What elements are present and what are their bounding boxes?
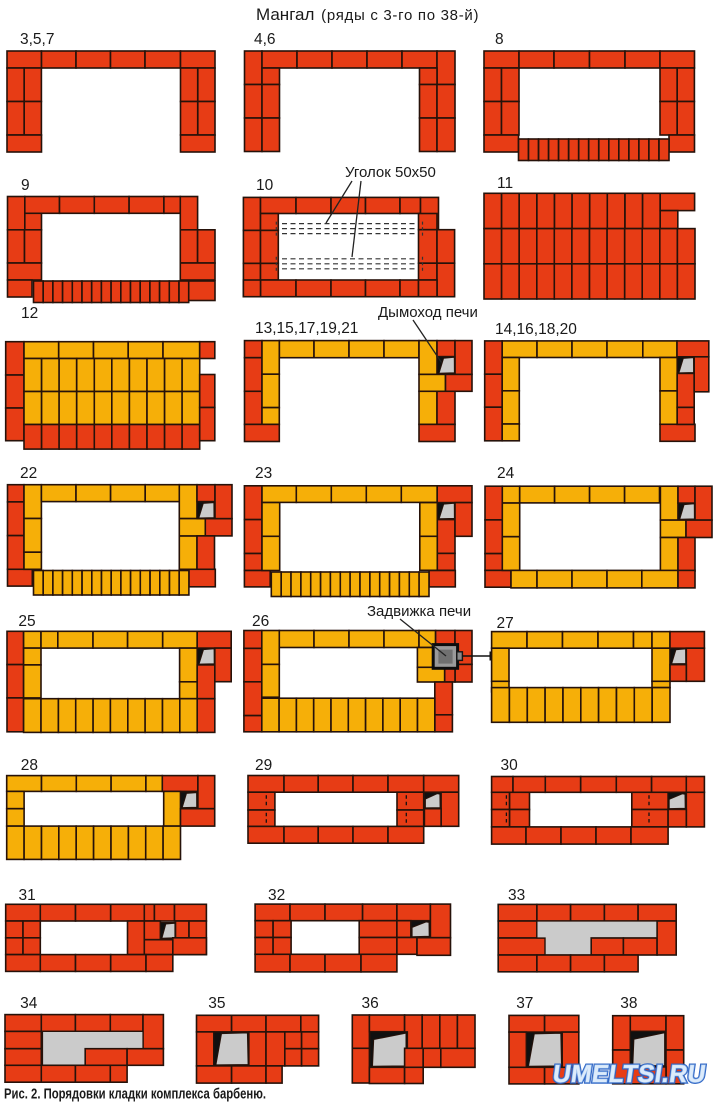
svg-text:3,5,7: 3,5,7 [20, 31, 54, 48]
svg-text:36: 36 [362, 995, 379, 1012]
svg-text:38: 38 [620, 995, 637, 1012]
svg-text:Мангал (ряды с 3-го по 38-й): Мангал (ряды с 3-го по 38-й) [256, 5, 479, 24]
svg-text:4,6: 4,6 [254, 31, 276, 48]
svg-text:14,16,18,20: 14,16,18,20 [495, 321, 577, 338]
svg-text:37: 37 [516, 995, 533, 1012]
svg-text:UMELTSI.RU: UMELTSI.RU [551, 1061, 708, 1088]
svg-text:12: 12 [21, 305, 38, 322]
svg-text:27: 27 [497, 615, 514, 632]
svg-text:Уголок 50х50: Уголок 50х50 [345, 164, 436, 181]
svg-text:10: 10 [256, 177, 274, 194]
svg-text:8: 8 [495, 31, 504, 48]
svg-text:23: 23 [255, 465, 272, 482]
svg-text:22: 22 [20, 465, 37, 482]
svg-text:30: 30 [501, 757, 519, 774]
svg-text:28: 28 [21, 757, 38, 774]
svg-text:25: 25 [18, 613, 35, 630]
svg-text:9: 9 [21, 177, 30, 194]
svg-text:32: 32 [268, 887, 285, 904]
svg-text:31: 31 [19, 887, 36, 904]
svg-text:Рис. 2. Порядовки кладки компл: Рис. 2. Порядовки кладки комплекса барбе… [4, 1087, 266, 1102]
svg-text:11: 11 [497, 175, 513, 192]
svg-text:34: 34 [20, 995, 38, 1012]
svg-text:24: 24 [497, 465, 515, 482]
svg-text:29: 29 [255, 757, 272, 774]
svg-text:13,15,17,19,21: 13,15,17,19,21 [255, 320, 358, 337]
svg-text:33: 33 [508, 887, 525, 904]
svg-text:26: 26 [252, 613, 269, 630]
svg-text:Дымоход печи: Дымоход печи [378, 304, 478, 321]
svg-text:35: 35 [208, 995, 225, 1012]
svg-text:Задвижка печи: Задвижка печи [367, 603, 471, 620]
